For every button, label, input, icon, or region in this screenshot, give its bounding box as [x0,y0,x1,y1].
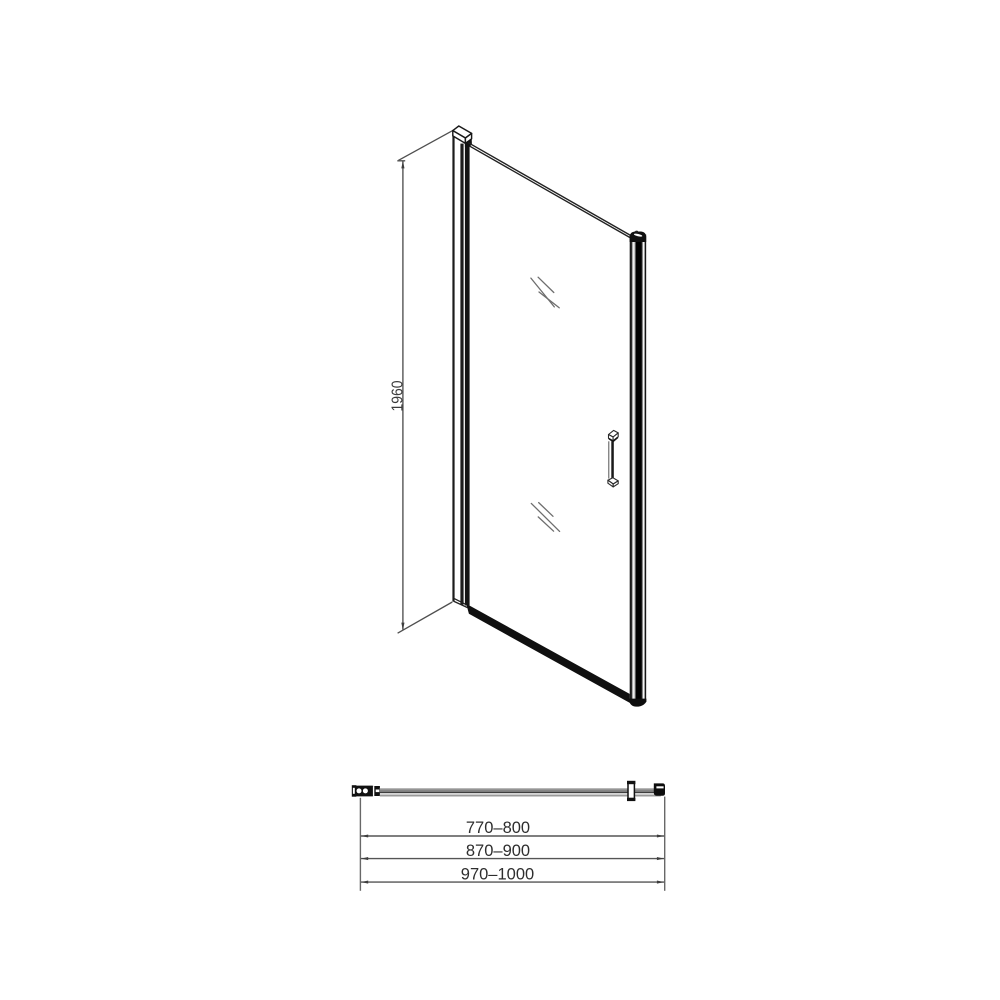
svg-text:870–900: 870–900 [466,842,530,860]
svg-text:1960: 1960 [389,380,406,411]
svg-text:770–800: 770–800 [466,819,530,837]
svg-text:970–1000: 970–1000 [461,865,534,883]
